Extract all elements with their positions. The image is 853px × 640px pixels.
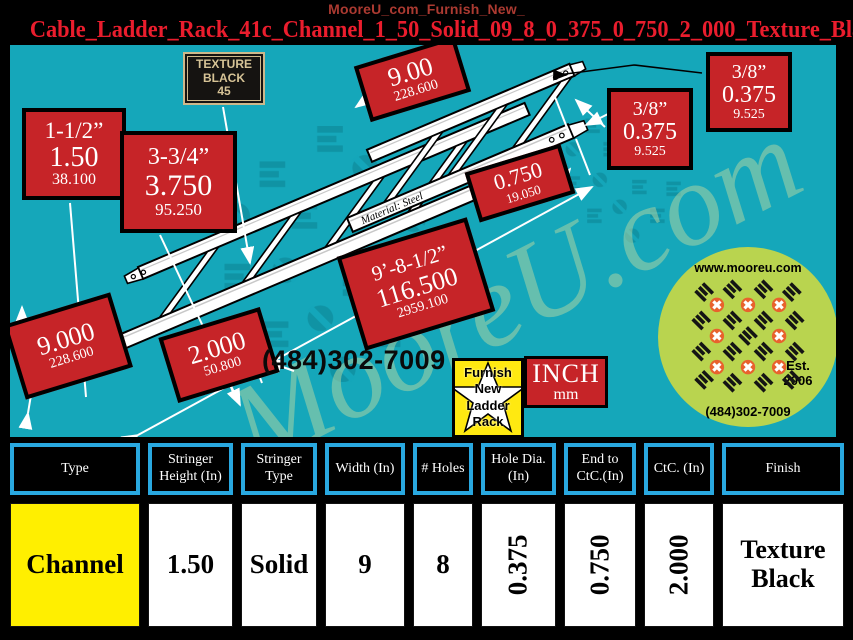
value-stringer-type: Solid bbox=[241, 503, 317, 627]
label-decimal-value: 1.50 bbox=[26, 143, 122, 172]
value-stringer-height: 1.50 bbox=[148, 503, 233, 627]
value-width: 9 bbox=[325, 503, 405, 627]
header-type: Type bbox=[10, 443, 140, 495]
window-title: MooreU_com_Furnish_New_ bbox=[0, 1, 853, 17]
product-code-title: Cable_Ladder_Rack_41c_Channel_1_50_Solid… bbox=[30, 17, 823, 44]
value-holes: 8 bbox=[413, 503, 473, 627]
value-ctc-text: 2.000 bbox=[664, 535, 694, 596]
label-mm-value: 38.100 bbox=[26, 172, 122, 189]
label-decimal-value: 0.375 bbox=[611, 120, 689, 145]
logo-est: Est. bbox=[786, 358, 810, 373]
value-hole-dia: 0.375 bbox=[481, 503, 556, 627]
spec-table-value-row: Channel 1.50 Solid 9 8 0.375 0.750 2.000… bbox=[10, 503, 844, 627]
header-stringer-height: Stringer Height (In) bbox=[148, 443, 233, 495]
mooreu-logo: www.mooreu.com (484)302-7009 Est. 2006 bbox=[655, 244, 836, 430]
header-width: Width (In) bbox=[325, 443, 405, 495]
label-inch-value: 1-1/2” bbox=[26, 119, 122, 143]
phone-number: (484)302-7009 bbox=[262, 345, 446, 376]
label-mm-value: 95.250 bbox=[124, 201, 233, 219]
logo-phone: (484)302-7009 bbox=[705, 404, 790, 419]
header-ctc: CtC. (In) bbox=[644, 443, 714, 495]
header-finish: Finish bbox=[722, 443, 844, 495]
label-inch-value: 3-3/4” bbox=[124, 145, 233, 170]
page: MooreU_com_Furnish_New_ Cable_Ladder_Rac… bbox=[0, 0, 853, 640]
plaque-line3: 45 bbox=[188, 85, 260, 99]
header-stringer-type: Stringer Type bbox=[241, 443, 317, 495]
label-inch-value: 3/8” bbox=[611, 99, 689, 120]
furnish-new-badge: Furnish New Ladder Rack bbox=[452, 358, 524, 437]
plaque-line1: TEXTURE bbox=[188, 58, 260, 72]
value-type: Channel bbox=[10, 503, 140, 627]
label-mm-value: 9.525 bbox=[710, 108, 788, 123]
value-finish: Texture Black bbox=[722, 503, 844, 627]
value-hole-dia-text: 0.375 bbox=[504, 535, 534, 596]
value-end-to-ctc: 0.750 bbox=[564, 503, 636, 627]
label-mm-value: 9.525 bbox=[611, 145, 689, 160]
badge-line2: New bbox=[455, 381, 521, 397]
spec-table: Type Stringer Height (In) Stringer Type … bbox=[0, 437, 853, 640]
spec-table-header-row: Type Stringer Height (In) Stringer Type … bbox=[10, 443, 844, 495]
header-hole-dia: Hole Dia. (In) bbox=[481, 443, 556, 495]
value-ctc: 2.000 bbox=[644, 503, 714, 627]
badge-line4: Rack bbox=[455, 414, 521, 430]
value-end-to-ctc-text: 0.750 bbox=[585, 535, 615, 596]
label-stringer-height: 1-1/2” 1.50 38.100 bbox=[22, 108, 126, 200]
units-legend: INCH mm bbox=[524, 356, 608, 408]
label-decimal-value: 0.375 bbox=[710, 83, 788, 108]
plaque-line2: BLACK bbox=[188, 72, 260, 86]
header-holes: # Holes bbox=[413, 443, 473, 495]
badge-line3: Ladder bbox=[455, 398, 521, 414]
logo-website: www.mooreu.com bbox=[693, 261, 801, 275]
label-inch-value: 3/8” bbox=[710, 62, 788, 83]
label-hole-diameter-a: 3/8” 0.375 9.525 bbox=[706, 52, 792, 132]
label-hole-diameter-b: 3/8” 0.375 9.525 bbox=[607, 88, 693, 170]
texture-swatch-plaque: TEXTURE BLACK 45 bbox=[183, 52, 265, 105]
badge-line1: Furnish bbox=[455, 365, 521, 381]
units-inch-label: INCH bbox=[527, 360, 605, 387]
label-rail-width: 3-3/4” 3.750 95.250 bbox=[120, 131, 237, 233]
label-decimal-value: 3.750 bbox=[124, 170, 233, 201]
units-mm-label: mm bbox=[527, 387, 605, 404]
header-end-to-ctc: End to CtC.(In) bbox=[564, 443, 636, 495]
drawing-canvas: MooreU.com bbox=[10, 45, 836, 437]
